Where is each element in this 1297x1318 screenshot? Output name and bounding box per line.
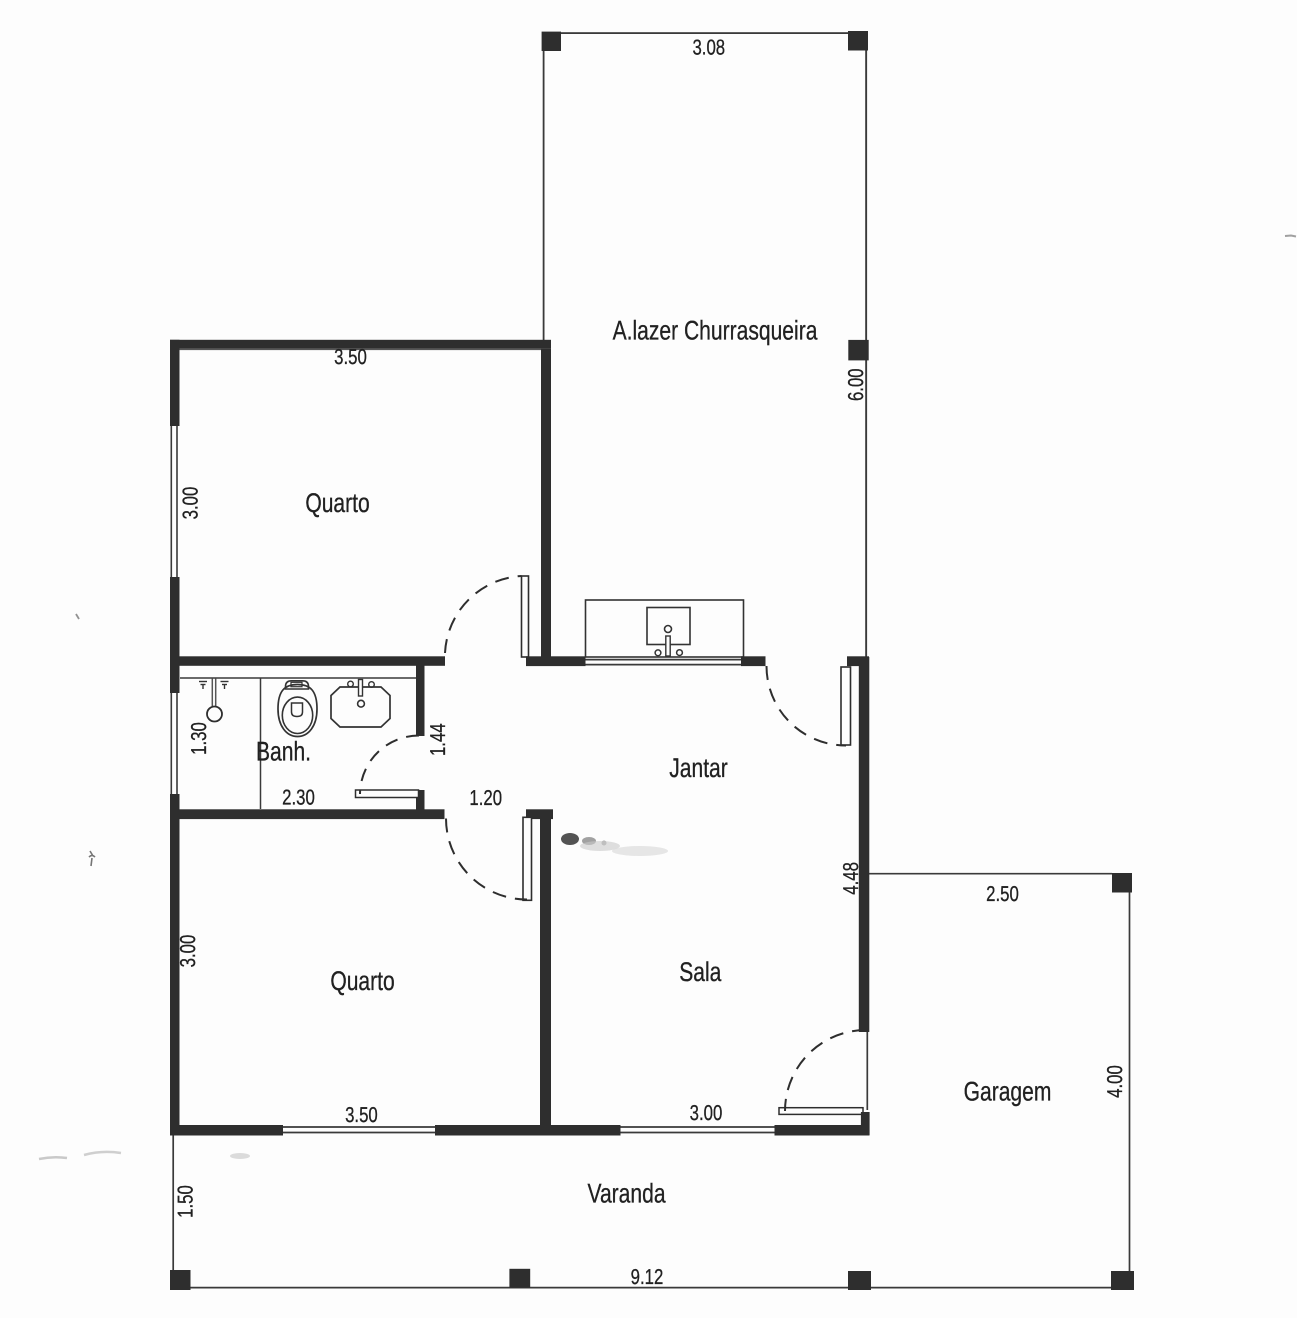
svg-text:3.00: 3.00 xyxy=(690,1101,723,1125)
svg-text:1.50: 1.50 xyxy=(174,1185,198,1218)
svg-text:Quarto: Quarto xyxy=(305,488,369,518)
svg-text:3.50: 3.50 xyxy=(345,1103,378,1127)
svg-text:3.08: 3.08 xyxy=(692,35,725,59)
svg-text:Jantar: Jantar xyxy=(669,753,728,783)
svg-text:A.lazer Churrasqueira: A.lazer Churrasqueira xyxy=(613,315,819,345)
svg-text:4.48: 4.48 xyxy=(839,862,863,895)
svg-text:2.50: 2.50 xyxy=(986,882,1019,906)
svg-text:Sala: Sala xyxy=(679,957,722,987)
svg-text:1.44: 1.44 xyxy=(426,723,450,756)
svg-text:3.00: 3.00 xyxy=(176,935,200,968)
svg-text:4.00: 4.00 xyxy=(1103,1065,1127,1098)
svg-text:9.12: 9.12 xyxy=(631,1265,664,1289)
svg-text:Banh.: Banh. xyxy=(256,737,311,767)
svg-text:6.00: 6.00 xyxy=(844,368,868,401)
svg-text:3.50: 3.50 xyxy=(334,345,367,369)
svg-text:Varanda: Varanda xyxy=(587,1179,666,1209)
svg-text:1.20: 1.20 xyxy=(469,786,502,810)
svg-text:Garagem: Garagem xyxy=(964,1077,1052,1107)
svg-text:3.00: 3.00 xyxy=(179,487,203,520)
svg-text:1.30: 1.30 xyxy=(187,722,211,755)
svg-text:2.30: 2.30 xyxy=(282,786,315,810)
svg-text:Quarto: Quarto xyxy=(330,966,394,996)
